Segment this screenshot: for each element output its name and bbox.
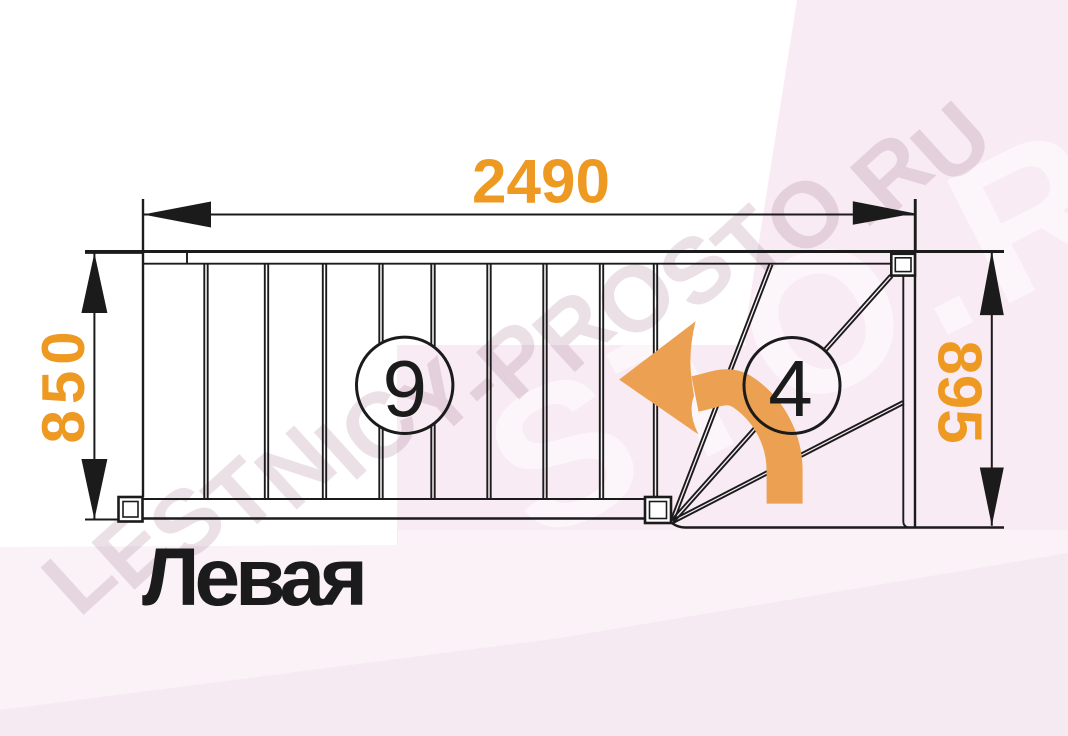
svg-text:4: 4 [768, 344, 813, 433]
svg-text:9: 9 [382, 344, 427, 433]
svg-text:Левая: Левая [142, 532, 363, 623]
svg-text:850: 850 [30, 325, 97, 443]
svg-text:2490: 2490 [472, 148, 610, 217]
svg-text:895: 895 [925, 340, 994, 443]
